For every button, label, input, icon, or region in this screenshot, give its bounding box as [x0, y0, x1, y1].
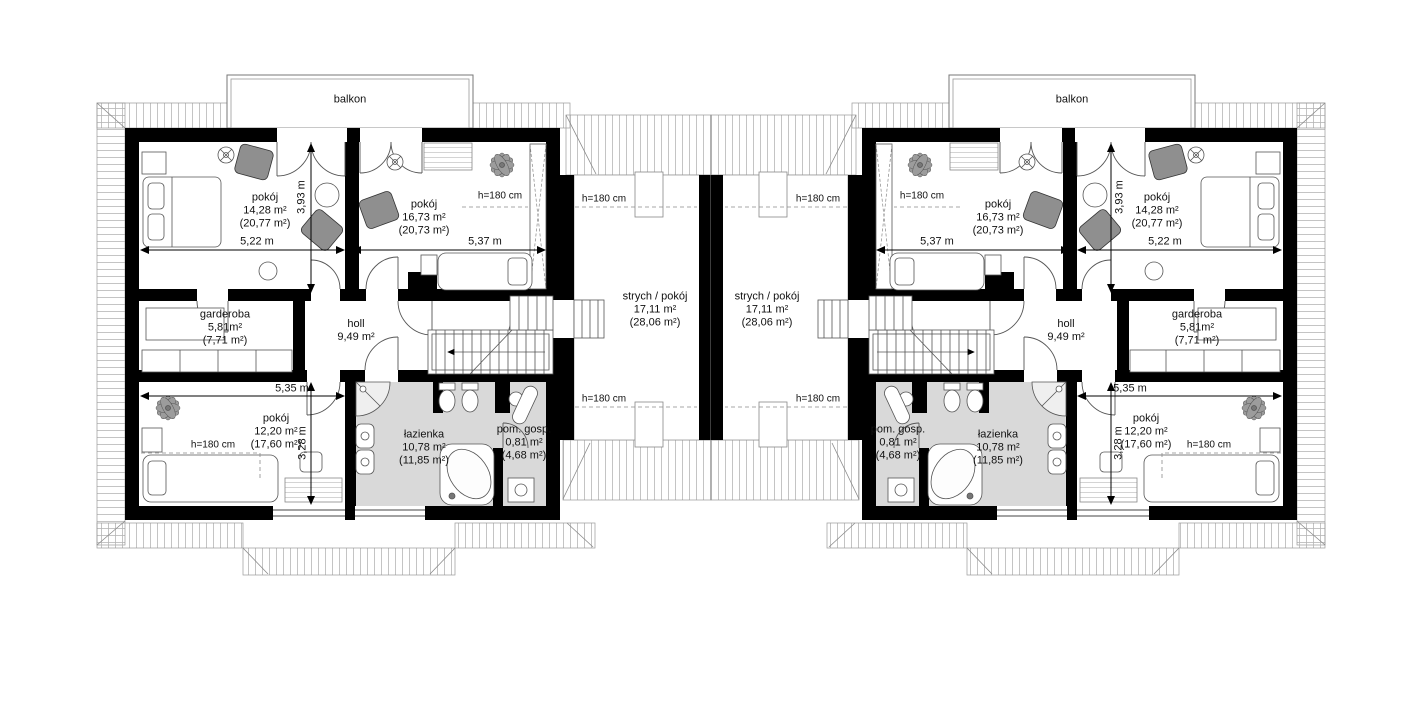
room-label-bedroom-a-left: pokój14,28 m²(20,77 m²) — [240, 192, 291, 231]
room-label-attic-right: strych / pokój17,11 m²(28,06 m²) — [735, 291, 800, 330]
room-label-hall-right: holl9,49 m² — [1047, 318, 1084, 344]
right-unit-graphics — [711, 75, 1325, 575]
height-marker-attic-bottom-right: h=180 cm — [796, 393, 840, 406]
room-label-wardrobe-left: garderoba5,81m²(7,71 m²) — [200, 309, 250, 348]
room-label-utility-left: pom. gosp.0,81 m²(4,68 m²) — [497, 424, 551, 463]
room-label-wardrobe-right: garderoba5,81m²(7,71 m²) — [1172, 309, 1222, 348]
room-label-bedroom-b-left: pokój16,73 m²(20,73 m²) — [399, 199, 450, 238]
room-label-bedroom-c-right: pokój12,20 m²(17,60 m²) — [1121, 413, 1172, 452]
dim-bedroom-b-width-left: 5,37 m — [468, 236, 502, 249]
dim-bedroom-depth-right: 3,93 m — [1114, 180, 1127, 214]
room-label-attic-left: strych / pokój17,11 m²(28,06 m²) — [623, 291, 688, 330]
room-label-bedroom-b-right: pokój16,73 m²(20,73 m²) — [973, 199, 1024, 238]
room-label-hall-left: holl9,49 m² — [337, 318, 374, 344]
room-label-utility-right: pom. gosp.0,81 m²(4,68 m²) — [871, 424, 925, 463]
dim-bedroom-depth-left: 3,93 m — [296, 180, 309, 214]
dim-bedroom-a-width-right: 5,22 m — [1148, 236, 1182, 249]
balcony-label-left: balkon — [334, 94, 366, 107]
height-marker-attic-bottom-left: h=180 cm — [582, 393, 626, 406]
height-marker-attic-top-right: h=180 cm — [796, 193, 840, 206]
room-label-bathroom-right: łazienka10,78 m²(11,85 m²) — [973, 429, 1023, 468]
height-marker-bedroom-b-right: h=180 cm — [900, 190, 944, 203]
dim-bedroom-c-width-left: 5,35 m — [275, 383, 309, 396]
height-marker-attic-top-left: h=180 cm — [582, 193, 626, 206]
left-unit-graphics — [97, 75, 711, 575]
room-label-bedroom-c-left: pokój12,20 m²(17,60 m²) — [251, 413, 302, 452]
balcony-label-right: balkon — [1056, 94, 1088, 107]
height-marker-bedroom-b-left: h=180 cm — [478, 190, 522, 203]
floor-plan-drawing — [0, 0, 1422, 702]
room-label-bathroom-left: łazienka10,78 m²(11,85 m²) — [399, 429, 449, 468]
dim-bedroom-a-width-left: 5,22 m — [240, 236, 274, 249]
room-label-bedroom-a-right: pokój14,28 m²(20,77 m²) — [1132, 192, 1183, 231]
floor-plan-stage: balkon pokój14,28 m²(20,77 m²) pokój16,7… — [0, 0, 1422, 702]
height-marker-bedroom-c-left: h=180 cm — [191, 439, 235, 452]
dim-bedroom-b-width-right: 5,37 m — [920, 236, 954, 249]
height-marker-bedroom-c-right: h=180 cm — [1187, 439, 1231, 452]
dim-bedroom-c-width-right: 5,35 m — [1113, 383, 1147, 396]
